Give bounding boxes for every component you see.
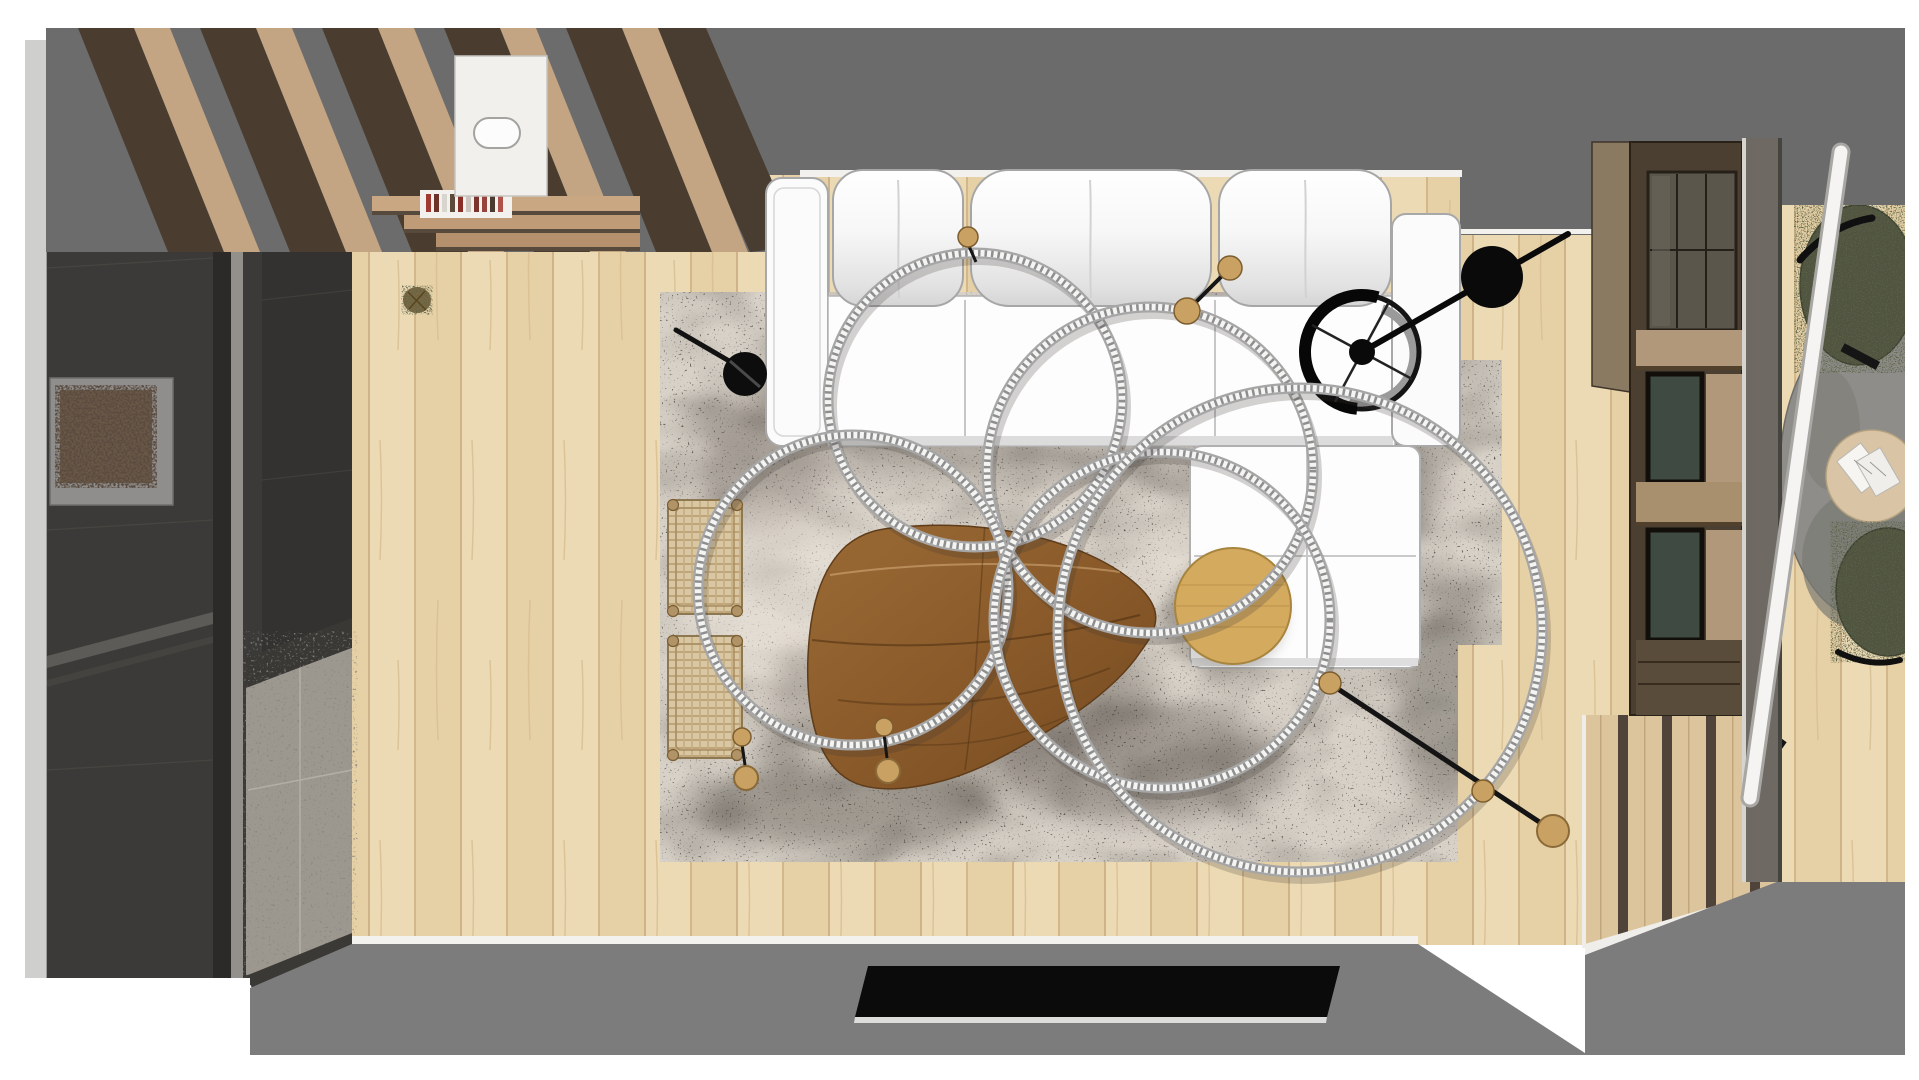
stool-post xyxy=(668,500,679,511)
frame-margin-bottom xyxy=(0,1058,1919,1080)
stool-post xyxy=(732,750,743,761)
cabinet-sheen xyxy=(1652,176,1670,326)
frame-margin-right xyxy=(1905,0,1919,1080)
shelf-book xyxy=(434,194,439,212)
sofa-left-arm xyxy=(766,178,828,446)
frame-margin-top xyxy=(0,0,1919,28)
shelf-ledge-edge xyxy=(404,229,640,233)
pendant-bead xyxy=(875,718,893,736)
stool-post xyxy=(732,606,743,617)
pendant-bead xyxy=(958,227,978,247)
cabinet-shelf-band xyxy=(1636,330,1742,370)
stool-post xyxy=(668,750,679,761)
arc-lamp-disc xyxy=(1461,246,1523,308)
media-cabinet-wing xyxy=(1592,142,1630,392)
slat-partition-left-edge xyxy=(1582,715,1586,948)
cabinet-shelf-edge xyxy=(1636,366,1742,370)
cabinet-shelf-edge xyxy=(1636,522,1742,526)
cabinet-side-column xyxy=(1706,530,1742,640)
outer-left-wall xyxy=(25,40,47,985)
shelf-ledge-edge xyxy=(436,247,640,251)
pendant-bead xyxy=(733,728,751,746)
cabinet-screen xyxy=(1648,374,1702,482)
cabinet-base xyxy=(1636,640,1742,715)
pillow-crease xyxy=(1305,180,1306,298)
scene-canvas xyxy=(0,0,1919,1080)
tv-underline xyxy=(854,1017,1327,1023)
shelf-book xyxy=(442,194,447,212)
stool-post xyxy=(668,636,679,647)
stool-post xyxy=(668,606,679,617)
shelf-book xyxy=(426,194,431,212)
cabinet-screen xyxy=(1648,530,1702,640)
frame-margin-left xyxy=(0,0,25,1080)
pendant-bead xyxy=(1472,780,1494,802)
stool-post xyxy=(732,636,743,647)
cabinet-side-column xyxy=(1706,374,1742,482)
rattan-stool xyxy=(668,636,742,758)
cabinet-shelf-band xyxy=(1636,482,1742,526)
shelf-ledge xyxy=(436,233,640,249)
scene-root xyxy=(0,0,1919,1080)
pendant-counterweight xyxy=(734,766,758,790)
ceiling-panel-pill xyxy=(474,118,520,148)
pendant-counterweight xyxy=(1537,815,1569,847)
pendant-bead xyxy=(1218,256,1242,280)
pendant-bead xyxy=(1174,298,1200,324)
living-room-top-view-render xyxy=(0,0,1919,1080)
balcony-stone-tiles xyxy=(246,648,352,975)
balcony-picture-art xyxy=(60,390,152,483)
pillow-crease xyxy=(1090,180,1091,298)
pendant-counterweight xyxy=(876,759,900,783)
tv-screen xyxy=(855,966,1340,1017)
pendant-bead xyxy=(1319,672,1341,694)
